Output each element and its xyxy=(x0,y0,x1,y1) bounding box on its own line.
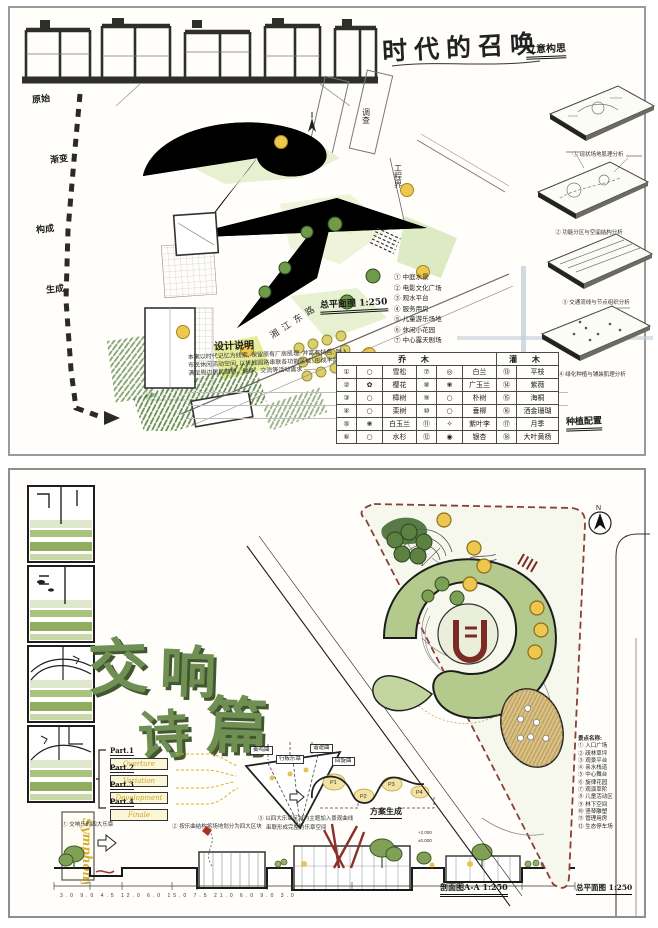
legend-cell: ◎ xyxy=(437,366,463,379)
legend-cell: ⑯ xyxy=(497,405,517,418)
spot-item: ⑧ 儿童活动区 xyxy=(578,794,613,801)
legend-cell: 水杉 xyxy=(383,431,417,444)
legend-cell: 银杏 xyxy=(463,431,497,444)
legend-cell: ⑨ xyxy=(417,392,437,405)
feature-item: ⑤ 儿童游乐场地 xyxy=(394,314,442,325)
top-sheet: 时代的召唤 立意构思 调查 工程界 xyxy=(8,6,646,456)
legend-cell: ⑧ xyxy=(417,379,437,392)
bottom-sheet: Symphony 交 响 诗 篇 Part.1Overture Part.2Va… xyxy=(8,468,646,918)
planting-config-label: 种植配置 xyxy=(566,413,603,431)
analysis-caption: ④ 绿化种植与铺装肌理分析 xyxy=(530,371,654,379)
legend-cell: 广玉兰 xyxy=(463,379,497,392)
movement-parts-list: Part.1Overture Part.2Variation Part.3Dev… xyxy=(110,740,168,808)
design-notes-title: 设计说明 xyxy=(214,336,254,352)
axon-plate-sketch xyxy=(538,74,658,146)
feature-item: ⑥ 休闲小花园 xyxy=(394,325,442,336)
axon-plate-sketch xyxy=(536,222,656,294)
legend-cell: 樟树 xyxy=(383,392,417,405)
legend-cell: ❀ xyxy=(437,379,463,392)
keyed-features-list: ① 中庭水景 ② 电影文化广场 ③ 观水平台 ④ 服务用房 ⑤ 儿童游乐场地 ⑥… xyxy=(394,272,442,346)
axon-plate-sketch xyxy=(530,294,654,366)
legend-cell: 洒金珊瑚 xyxy=(517,405,559,418)
part-word: Finale xyxy=(110,809,168,821)
spot-item: ② 疏林草坪 xyxy=(578,751,613,758)
legend-cell: ◉ xyxy=(437,431,463,444)
spot-item: ① 入口广场 xyxy=(578,743,613,750)
process-label: 生成 xyxy=(45,281,64,296)
legend-row: ②✿樱花⑧❀广玉兰⑭紫薇 xyxy=(337,379,559,392)
legend-cell: ○ xyxy=(357,431,383,444)
legend-cell: 朴树 xyxy=(463,392,497,405)
spot-item: ⑫ 生态停车场 xyxy=(578,824,613,831)
process-label: 渐变 xyxy=(49,151,68,166)
legend-cell: ❀ xyxy=(357,418,383,431)
process-dashed-line xyxy=(38,90,188,435)
analysis-sketch-4: ④ 绿化种植与铺装肌理分析 xyxy=(530,294,654,379)
legend-cell: ⑦ xyxy=(417,366,437,379)
legend-cell: ○ xyxy=(357,366,383,379)
legend-cell: ⑥ xyxy=(337,431,357,444)
legend-cell: 栾树 xyxy=(383,405,417,418)
legend-cell: ○ xyxy=(437,405,463,418)
flow-bracket xyxy=(96,744,108,814)
spot-item: ⑪ 管理用房 xyxy=(578,816,613,823)
legend-cell: ⑫ xyxy=(417,431,437,444)
feature-item: ③ 观水平台 xyxy=(394,293,442,304)
legend-cell: ⑭ xyxy=(497,379,517,392)
triangle-park-plan xyxy=(232,488,650,918)
process-label: 构成 xyxy=(35,221,54,236)
legend-cell: ✧ xyxy=(437,418,463,431)
plan-scale-label: 总平面图 1:250 xyxy=(320,294,388,315)
arrow-right-icon xyxy=(104,411,120,425)
legend-cell: 月季 xyxy=(517,418,559,431)
legend-cell: 紫叶李 xyxy=(463,418,497,431)
legend-header-row: 乔 木 灌 木 xyxy=(337,353,559,366)
subtitle-label: 立意构思 xyxy=(526,39,567,59)
legend-cell: ○ xyxy=(357,392,383,405)
legend-cell: 垂柳 xyxy=(463,405,497,418)
spot-item: ⑨ 林下空间 xyxy=(578,802,613,809)
plan-caption: 总平面图 1:250 xyxy=(576,882,632,895)
spot-item: ⑤ 中心舞台 xyxy=(578,772,613,779)
legend-cell: ③ xyxy=(337,392,357,405)
legend-cell: ○ xyxy=(437,392,463,405)
part-label: Part.1 xyxy=(110,746,134,756)
north-arrow-icon: N xyxy=(586,502,614,536)
kite-icon xyxy=(202,826,212,836)
legend-row: ④○栾树⑩○垂柳⑯洒金珊瑚 xyxy=(337,405,559,418)
legend-cell: ⑬ xyxy=(497,366,517,379)
north-letter: N xyxy=(596,505,601,512)
legend-row: ⑥○水杉⑫◉银杏⑱大叶黄杨 xyxy=(337,431,559,444)
legend-row: ③○樟树⑨○朴树⑮海桐 xyxy=(337,392,559,405)
legend-cell: ⑩ xyxy=(417,405,437,418)
feature-item: ① 中庭水景 xyxy=(394,272,442,283)
title-char: 交 xyxy=(87,637,149,699)
legend-cell: ① xyxy=(337,366,357,379)
spot-item: ⑥ 旋律花园 xyxy=(578,780,613,787)
legend-cell: ✿ xyxy=(357,379,383,392)
legend-cell: ② xyxy=(337,379,357,392)
process-label: 原始 xyxy=(31,91,50,106)
part-label: Part.3 xyxy=(110,780,134,790)
feature-item: ⑦ 中心露天剧场 xyxy=(394,335,442,346)
axon-plate-sketch xyxy=(526,146,652,224)
legend-cell: 海桐 xyxy=(517,392,559,405)
part-label: Part.4 xyxy=(110,797,134,807)
legend-cell: 雪松 xyxy=(383,366,417,379)
legend-cell: ⑮ xyxy=(497,392,517,405)
legend-header-tree: 乔 木 xyxy=(337,353,497,366)
feature-item: ④ 服务用房 xyxy=(394,304,442,315)
highlighter-vertical xyxy=(521,266,526,358)
legend-row: ⑤❀白玉兰⑪✧紫叶李⑰月季 xyxy=(337,418,559,431)
legend-cell: ⑤ xyxy=(337,418,357,431)
scanned-sheet-page: { "colors": {"leaf_dark":"#3f6b2f","leaf… xyxy=(0,0,658,928)
legend-cell: 大叶黄杨 xyxy=(517,431,559,444)
legend-cell: ⑱ xyxy=(497,431,517,444)
part-row: Part.1Overture xyxy=(110,740,168,757)
legend-cell: 白玉兰 xyxy=(383,418,417,431)
legend-cell: ④ xyxy=(337,405,357,418)
legend-cell: 紫薇 xyxy=(517,379,559,392)
part-label: Part.2 xyxy=(110,763,134,773)
legend-cell: ⑪ xyxy=(417,418,437,431)
feature-item: ② 电影文化广场 xyxy=(394,283,442,294)
legend-cell: 樱花 xyxy=(383,379,417,392)
planting-legend-table: 乔 木 灌 木 ①○雪松⑦◎白兰⑬平枝 ②✿樱花⑧❀广玉兰⑭紫薇 ③○樟树⑨○朴… xyxy=(336,352,559,444)
legend-cell: ○ xyxy=(357,405,383,418)
legend-cell: ⑰ xyxy=(497,418,517,431)
legend-row: ①○雪松⑦◎白兰⑬平枝 xyxy=(337,366,559,379)
spots-list: 景点名称: ① 入口广场 ② 疏林草坪 ③ 观景平台 ④ 亲水栈道 ⑤ 中心舞台… xyxy=(578,736,613,831)
legend-cell: 白兰 xyxy=(463,366,497,379)
